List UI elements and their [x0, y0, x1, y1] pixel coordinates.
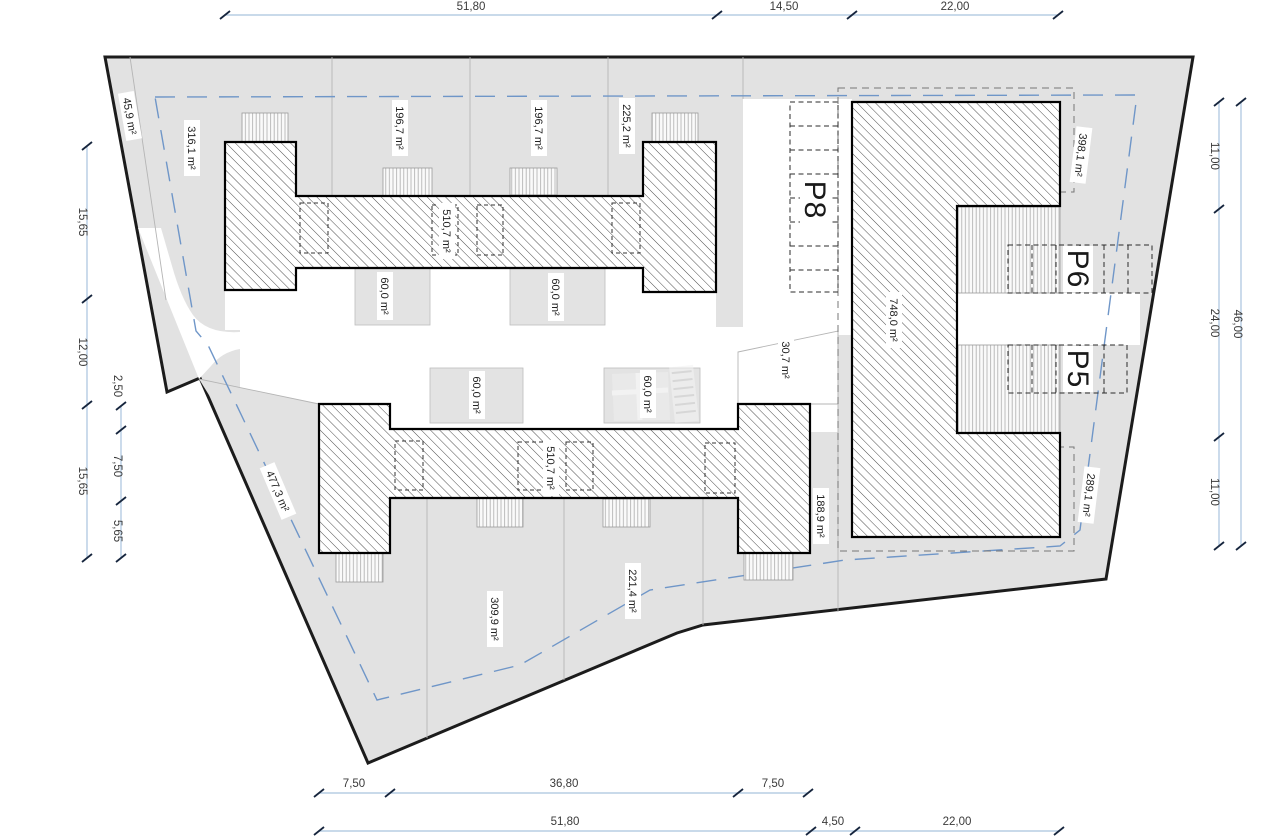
east-court-drive — [957, 293, 1140, 345]
under-right-wing — [643, 292, 716, 330]
dim-label: 15,65 — [76, 467, 88, 496]
area-label-garden-un2: 60,0 m² — [548, 273, 564, 321]
dim-right-outer: 46,00 — [1231, 98, 1246, 550]
svg-text:60,0 m²: 60,0 m² — [378, 277, 390, 315]
dim-label: 46,00 — [1231, 310, 1243, 339]
svg-text:510,7 m²: 510,7 m² — [544, 446, 556, 490]
terrace — [242, 113, 288, 142]
site-plan-drawing: 51,80 14,50 22,00 7,50 36,80 7,50 51,80 … — [0, 0, 1280, 840]
dim-label: 2,50 — [111, 375, 123, 397]
parking-label-p6: P6 — [1061, 246, 1094, 292]
svg-text:P6: P6 — [1061, 250, 1094, 289]
dim-bottom-upper: 7,50 36,80 7,50 — [314, 778, 813, 797]
terrace — [603, 499, 650, 527]
area-label-lot-n2: 196,7 m² — [531, 100, 547, 156]
terrace — [744, 553, 793, 580]
dim-label: 7,50 — [762, 778, 784, 790]
svg-text:P5: P5 — [1061, 350, 1094, 389]
dim-left-inner: 2,50 7,50 5,65 — [111, 375, 126, 562]
dim-label: 11,00 — [1208, 478, 1220, 506]
dim-label: 7,50 — [111, 455, 123, 477]
dim-label: 22,00 — [941, 1, 970, 13]
svg-text:60,0 m²: 60,0 m² — [470, 376, 482, 414]
svg-text:309,9 m²: 309,9 m² — [488, 597, 500, 641]
dim-bottom-lower: 51,80 4,50 22,00 — [314, 816, 1064, 835]
svg-text:225,2 m²: 225,2 m² — [620, 104, 632, 148]
dim-right-inner: 11,00 24,00 11,00 — [1208, 98, 1224, 550]
area-label-lot-strip: 188,9 m² — [813, 488, 829, 544]
parking-label-p5: P5 — [1061, 346, 1094, 392]
terrace — [652, 113, 698, 142]
area-label-lot-s2: 221,4 m² — [625, 563, 641, 619]
area-label-lot-nw: 316,1 m² — [184, 120, 200, 176]
dim-label: 14,50 — [770, 1, 799, 13]
svg-text:510,7 m²: 510,7 m² — [440, 209, 452, 253]
dim-label: 15,65 — [76, 208, 88, 237]
dim-label: 12,00 — [76, 338, 88, 367]
terrace — [383, 168, 432, 196]
area-label-lot-n1: 196,7 m² — [392, 100, 408, 156]
area-label-lot-s1: 309,9 m² — [487, 591, 503, 647]
under-left-wing — [225, 290, 296, 330]
area-label-wedge-center: 30,7 m² — [778, 336, 794, 384]
dim-label: 51,80 — [457, 1, 486, 13]
dim-left-outer: 15,65 12,00 15,65 — [76, 142, 92, 562]
svg-text:P8: P8 — [798, 181, 831, 220]
svg-text:30,7 m²: 30,7 m² — [779, 341, 791, 379]
svg-text:221,4 m²: 221,4 m² — [626, 569, 638, 613]
dim-label: 36,80 — [550, 778, 579, 790]
dim-label: 7,50 — [343, 778, 365, 790]
area-label-lower-building: 510,7 m² — [543, 440, 559, 496]
svg-text:196,7 m²: 196,7 m² — [393, 106, 405, 150]
parking-label-p8: P8 — [798, 177, 831, 223]
svg-text:60,0 m²: 60,0 m² — [641, 375, 653, 413]
north-road — [743, 99, 852, 335]
area-label-garden-ls2: 60,0 m² — [640, 370, 656, 418]
dim-label: 24,00 — [1208, 309, 1220, 338]
svg-text:60,0 m²: 60,0 m² — [549, 278, 561, 316]
dim-label: 22,00 — [943, 816, 972, 828]
svg-text:748,0 m²: 748,0 m² — [887, 298, 899, 342]
area-label-garden-ls1: 60,0 m² — [469, 371, 485, 419]
dim-label: 51,80 — [551, 816, 580, 828]
terrace — [510, 168, 557, 195]
svg-text:188,9 m²: 188,9 m² — [814, 494, 826, 538]
dim-label: 4,50 — [822, 816, 844, 828]
dim-label: 11,00 — [1208, 142, 1220, 170]
site-plan-canvas: 51,80 14,50 22,00 7,50 36,80 7,50 51,80 … — [0, 0, 1280, 840]
area-label-upper-building: 510,7 m² — [439, 203, 455, 259]
area-label-lot-n3: 225,2 m² — [619, 98, 635, 154]
dim-label: 5,65 — [111, 520, 123, 542]
area-label-garden-un1: 60,0 m² — [377, 272, 393, 320]
terrace — [477, 498, 523, 527]
svg-text:316,1 m²: 316,1 m² — [185, 126, 197, 170]
svg-text:196,7 m²: 196,7 m² — [532, 106, 544, 150]
area-label-east-building: 748,0 m² — [886, 292, 902, 348]
terrace — [336, 553, 383, 582]
dim-top: 51,80 14,50 22,00 — [220, 1, 1063, 19]
